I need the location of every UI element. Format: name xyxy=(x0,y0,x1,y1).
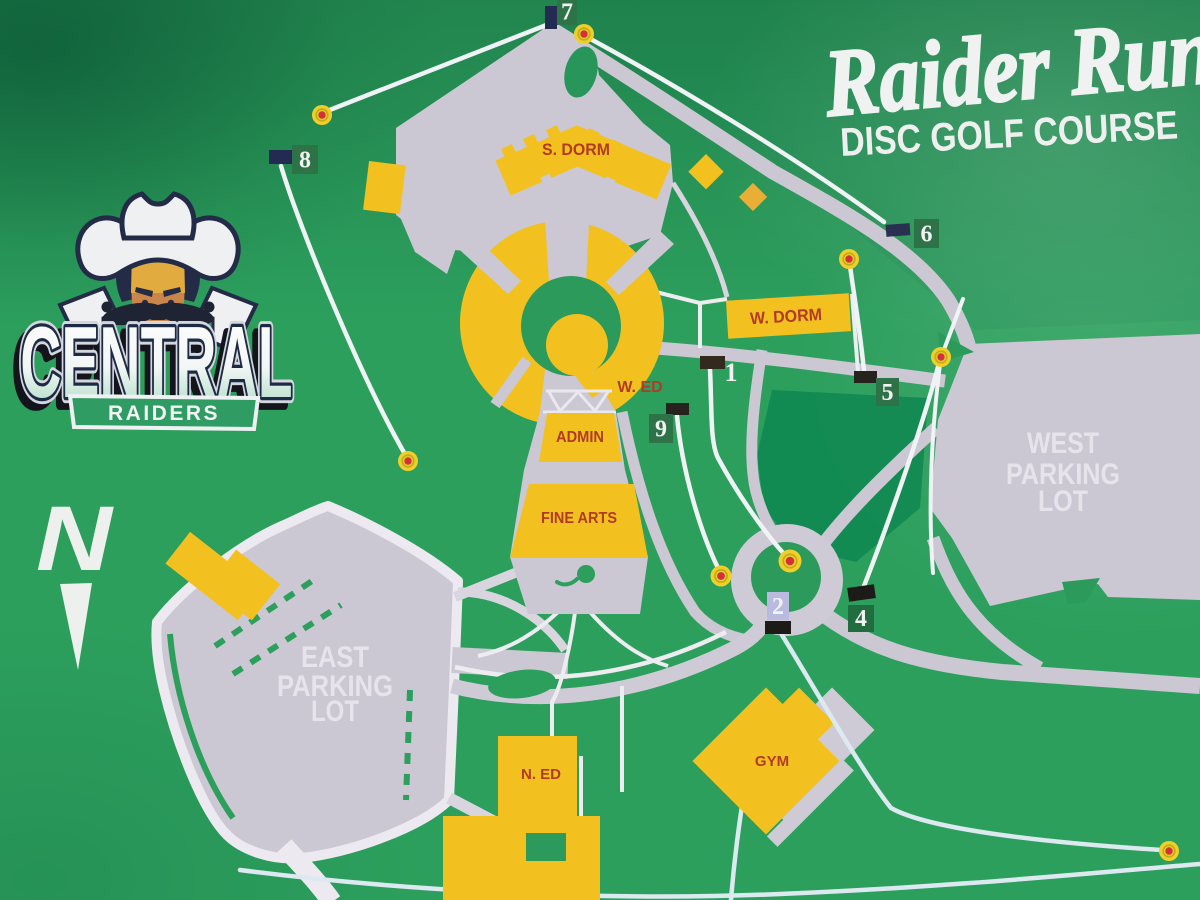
svg-text:1: 1 xyxy=(725,358,738,387)
svg-text:GYM: GYM xyxy=(755,753,789,770)
svg-text:RAIDERS: RAIDERS xyxy=(108,402,220,425)
svg-text:W. ED: W. ED xyxy=(617,379,662,396)
svg-text:7: 7 xyxy=(561,0,573,26)
svg-text:6: 6 xyxy=(921,222,933,248)
svg-text:8: 8 xyxy=(299,148,311,174)
svg-text:5: 5 xyxy=(882,380,894,406)
svg-text:2: 2 xyxy=(772,594,784,620)
svg-text:FINE ARTS: FINE ARTS xyxy=(541,510,617,527)
svg-text:WEST: WEST xyxy=(1027,427,1099,460)
svg-text:S. DORM: S. DORM xyxy=(542,140,610,159)
svg-text:9: 9 xyxy=(655,417,667,443)
svg-text:ADMIN: ADMIN xyxy=(556,429,604,446)
svg-text:4: 4 xyxy=(855,606,867,632)
svg-text:N. ED: N. ED xyxy=(521,766,561,783)
svg-text:LOT: LOT xyxy=(1038,485,1088,518)
svg-text:LOT: LOT xyxy=(311,695,359,728)
svg-text:N: N xyxy=(36,488,115,590)
